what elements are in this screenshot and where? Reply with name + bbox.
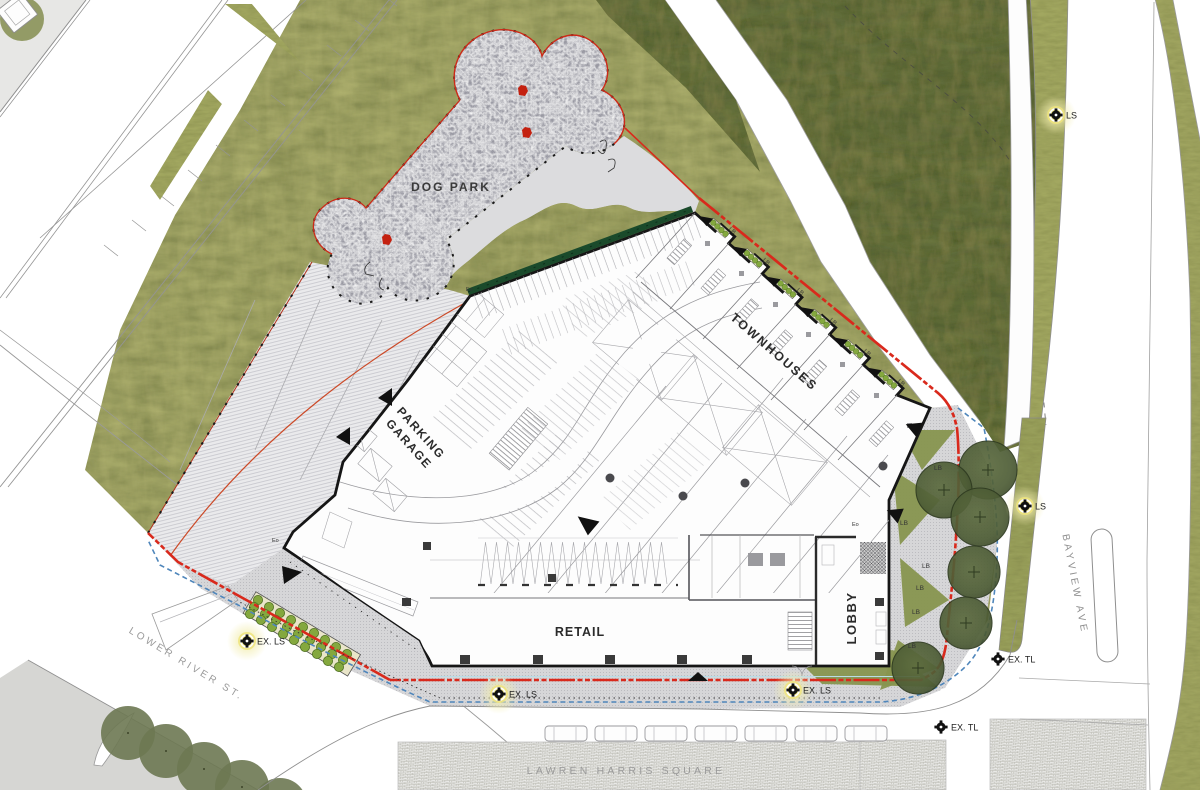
svg-text:LB: LB	[912, 609, 920, 616]
svg-text:LB: LB	[916, 585, 924, 592]
svg-text:DOG PARK: DOG PARK	[411, 180, 491, 194]
svg-text:LOBBY: LOBBY	[844, 592, 859, 645]
svg-text:RETAIL: RETAIL	[555, 625, 605, 639]
svg-text:Eo: Eo	[272, 538, 279, 544]
svg-text:LB: LB	[922, 563, 930, 570]
svg-text:EX. LS: EX. LS	[803, 686, 831, 696]
svg-text:LB: LB	[900, 520, 908, 527]
svg-text:Eo: Eo	[466, 287, 473, 293]
svg-text:EX. LS: EX. LS	[257, 637, 285, 647]
svg-text:LAWREN HARRIS SQUARE: LAWREN HARRIS SQUARE	[527, 765, 725, 777]
svg-text:LB: LB	[934, 465, 942, 472]
svg-text:EX. LS: EX. LS	[509, 690, 537, 700]
svg-text:EX. TL: EX. TL	[1008, 655, 1035, 665]
svg-text:LS: LS	[1035, 502, 1046, 512]
svg-text:LB: LB	[908, 643, 916, 650]
svg-text:EX. TL: EX. TL	[951, 723, 978, 733]
svg-text:Eo: Eo	[852, 522, 859, 528]
svg-text:LS: LS	[1066, 111, 1077, 121]
